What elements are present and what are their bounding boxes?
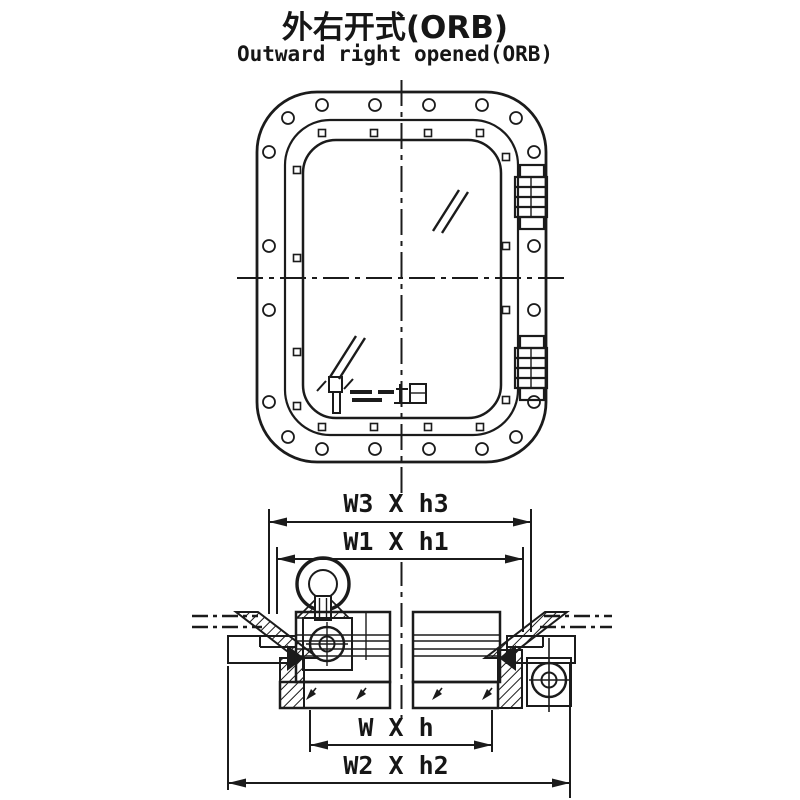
drawing-sheet: 外右开式(ORB) Outward right opened(ORB) — [0, 0, 800, 800]
swing-bolt — [527, 638, 571, 712]
dimension-w1h1-label: W1 X h1 — [343, 527, 448, 556]
glass-symbol-upper — [433, 190, 468, 233]
dimension-w2h2-label: W2 X h2 — [343, 751, 448, 780]
title-block: 外右开式(ORB) Outward right opened(ORB) — [237, 10, 553, 66]
dimension-wh: W X h — [310, 710, 492, 752]
hinge-top — [515, 165, 547, 229]
glass-symbol-lower — [330, 336, 365, 379]
left-bulkhead — [228, 612, 318, 708]
eye-bolt — [297, 558, 349, 620]
title-chinese: 外右开式(ORB) — [282, 10, 508, 46]
front-view — [237, 80, 566, 497]
latch-handle — [317, 377, 426, 413]
hinge-bottom — [515, 336, 547, 400]
title-english: Outward right opened(ORB) — [237, 42, 553, 66]
dimension-w3h3-label: W3 X h3 — [343, 489, 448, 518]
right-frame-section — [413, 612, 500, 708]
technical-drawing-svg: 外右开式(ORB) Outward right opened(ORB) — [0, 0, 800, 800]
dimension-wh-label: W X h — [358, 713, 433, 742]
section-view: W3 X h3 W1 X h1 — [192, 489, 612, 798]
